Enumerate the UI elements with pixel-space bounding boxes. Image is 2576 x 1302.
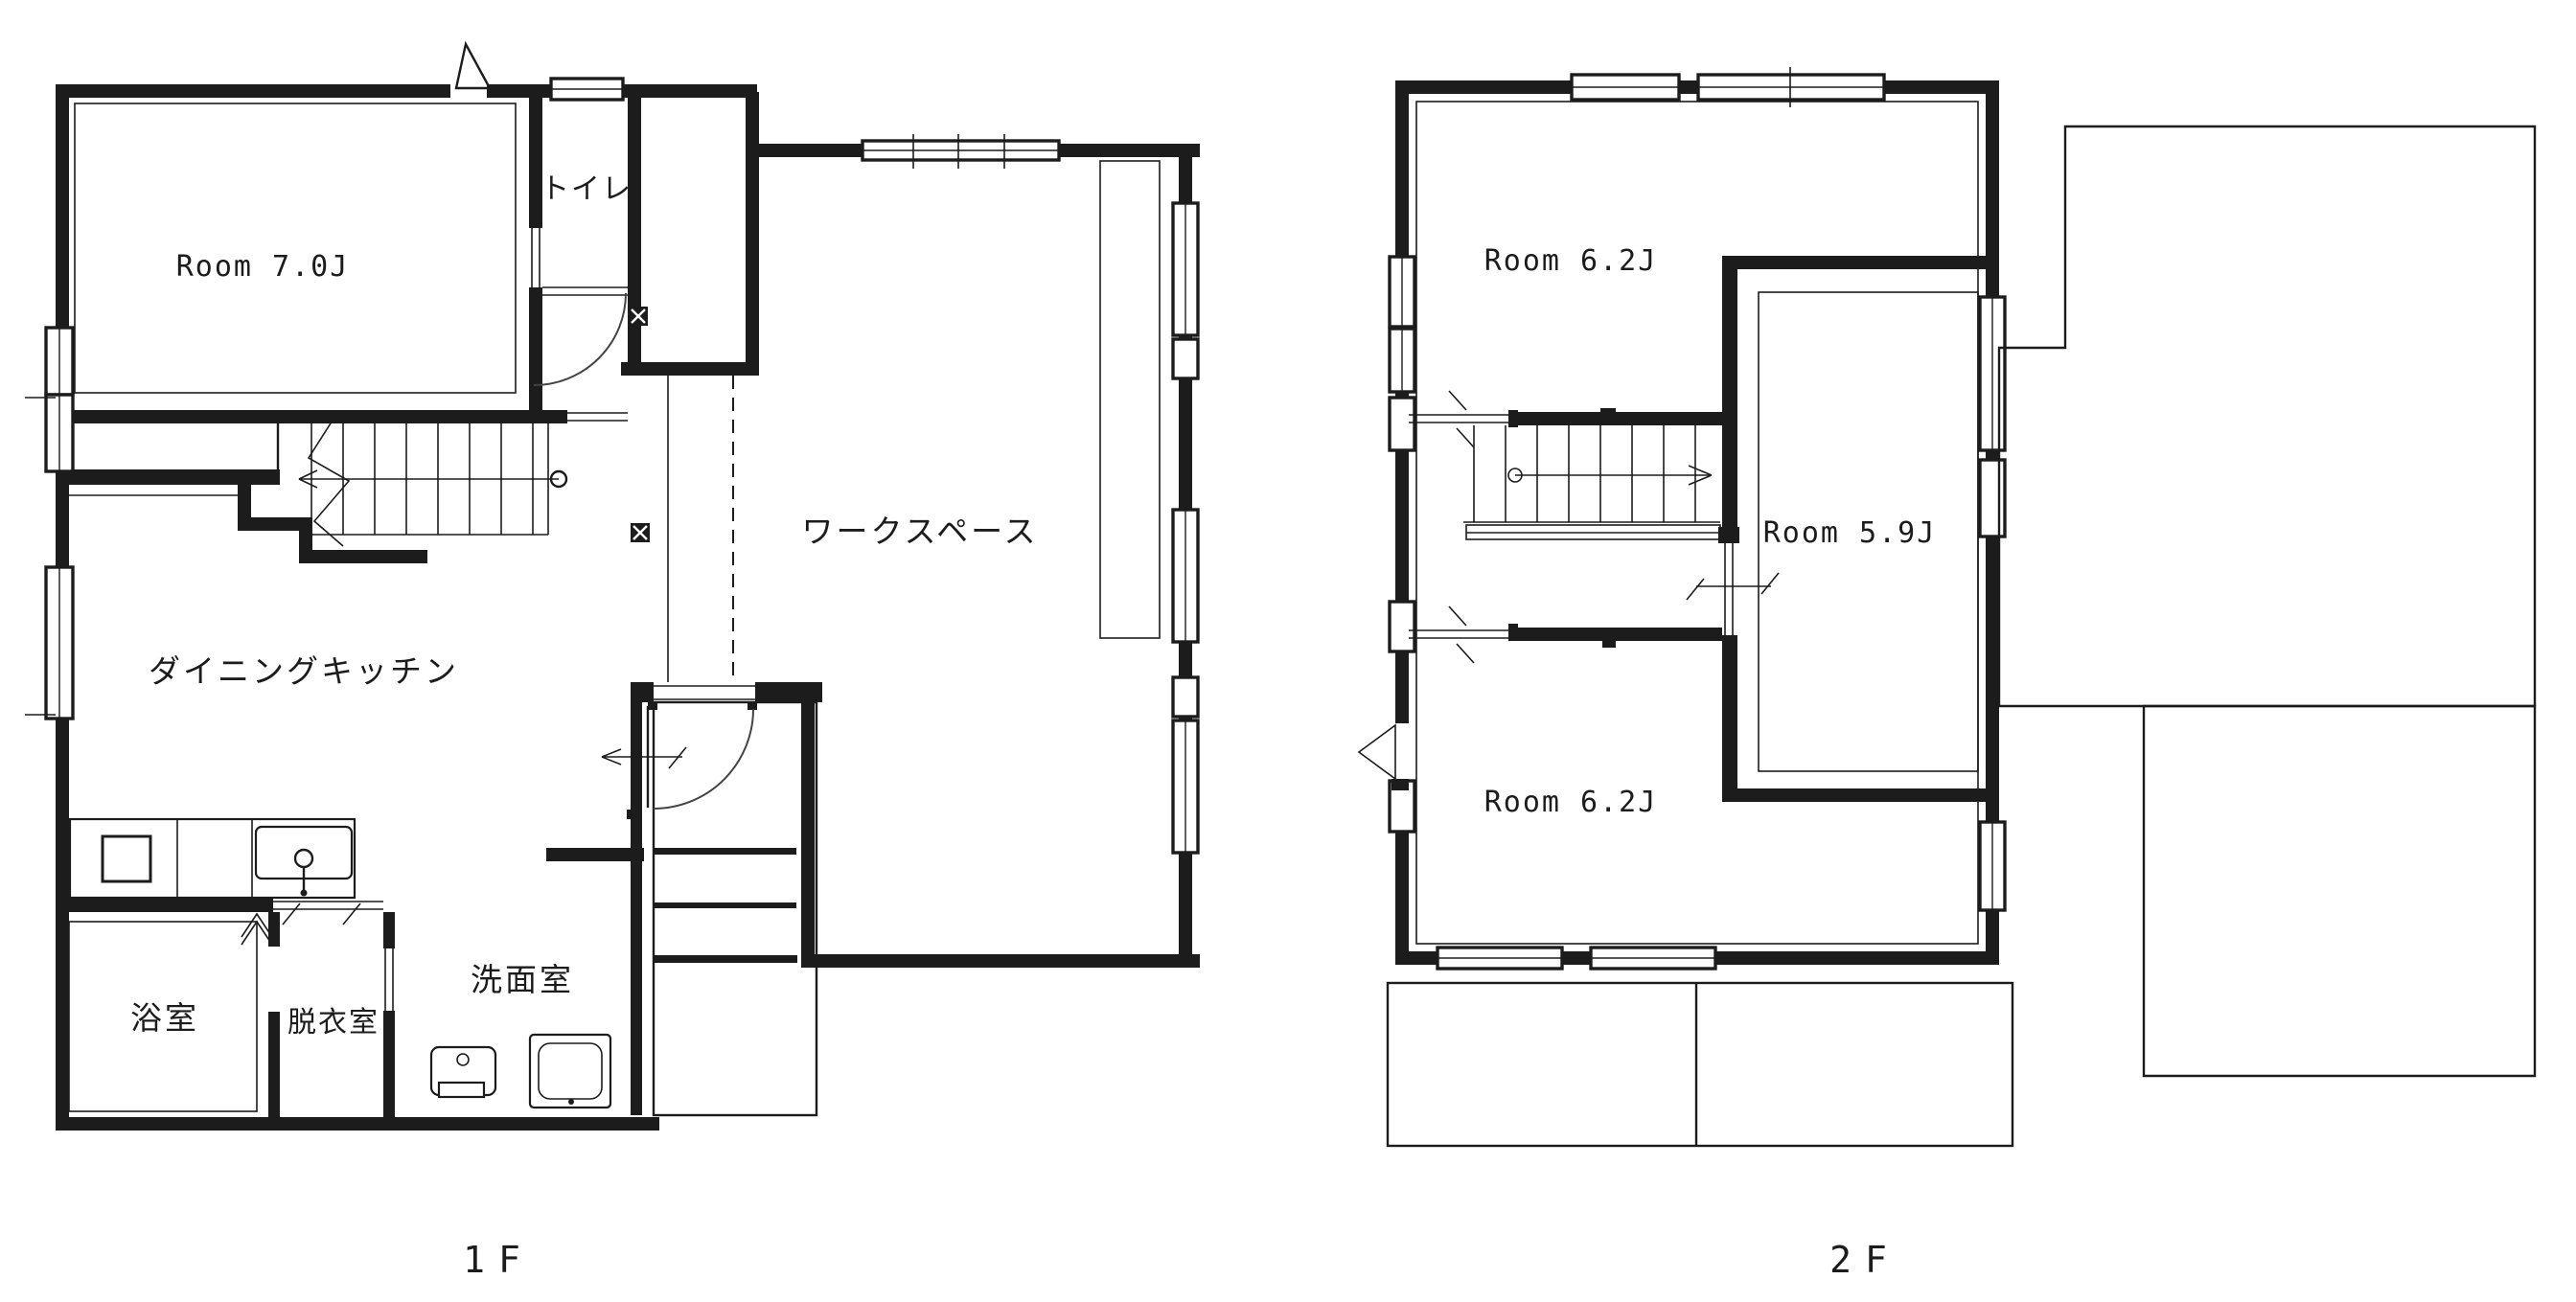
genkan-tile-floor [654,702,816,1115]
stair-closet-hatch [72,419,278,471]
washroom-doors [241,902,395,1012]
room-label-workspace: ワークスペース [801,513,1038,550]
room-label-5-9j: Room 5.9J [1763,516,1937,550]
washroom-fixtures [431,1035,610,1108]
west-door-2f [1359,723,1409,790]
room-label-dressing: 脱衣室 [287,1006,379,1039]
room-label-6-2j-north: Room 6.2J [1484,244,1658,278]
workspace-deck-hatch [1100,161,1160,638]
room-label-toilet: トイレ [540,172,632,206]
kitchen-counter [70,819,355,898]
room-label-7-0j: Room 7.0J [176,250,350,284]
caption-1f: 1F [463,1239,534,1281]
room-label-washroom: 洗面室 [471,961,574,998]
walls-1f [56,84,1200,1131]
caption-2f: 2F [1829,1239,1900,1281]
floor-1f-plan: Room 7.0J トイレ ワークスペース ダイニングキッチン 浴室 脱衣室 洗… [25,44,1200,1281]
labels-1f: Room 7.0J トイレ ワークスペース ダイニングキッチン 浴室 脱衣室 洗… [130,172,1039,1281]
floor-plan-drawing: Room 7.0J トイレ ワークスペース ダイニングキッチン 浴室 脱衣室 洗… [0,0,2576,1302]
room-label-dining-kitchen: ダイニングキッチン [149,652,459,690]
floor-plan-canvas: Room 7.0J トイレ ワークスペース ダイニングキッチン 浴室 脱衣室 洗… [0,0,2576,1302]
labels-2f: Room 6.2J Room 5.9J Room 6.2J 2F [1484,244,1937,1281]
entrance-door [648,686,755,809]
toilet-door [534,287,628,385]
floor-2f-plan: Room 6.2J Room 5.9J Room 6.2J 2F [1359,67,2535,1281]
stairs-2f [1463,425,1720,539]
room-label-bath: 浴室 [130,999,199,1037]
north-entry-door [450,44,490,100]
room7-inner-line [75,103,516,393]
genkan-sliding-door [602,702,686,810]
room-label-6-2j-south: Room 6.2J [1484,786,1658,819]
